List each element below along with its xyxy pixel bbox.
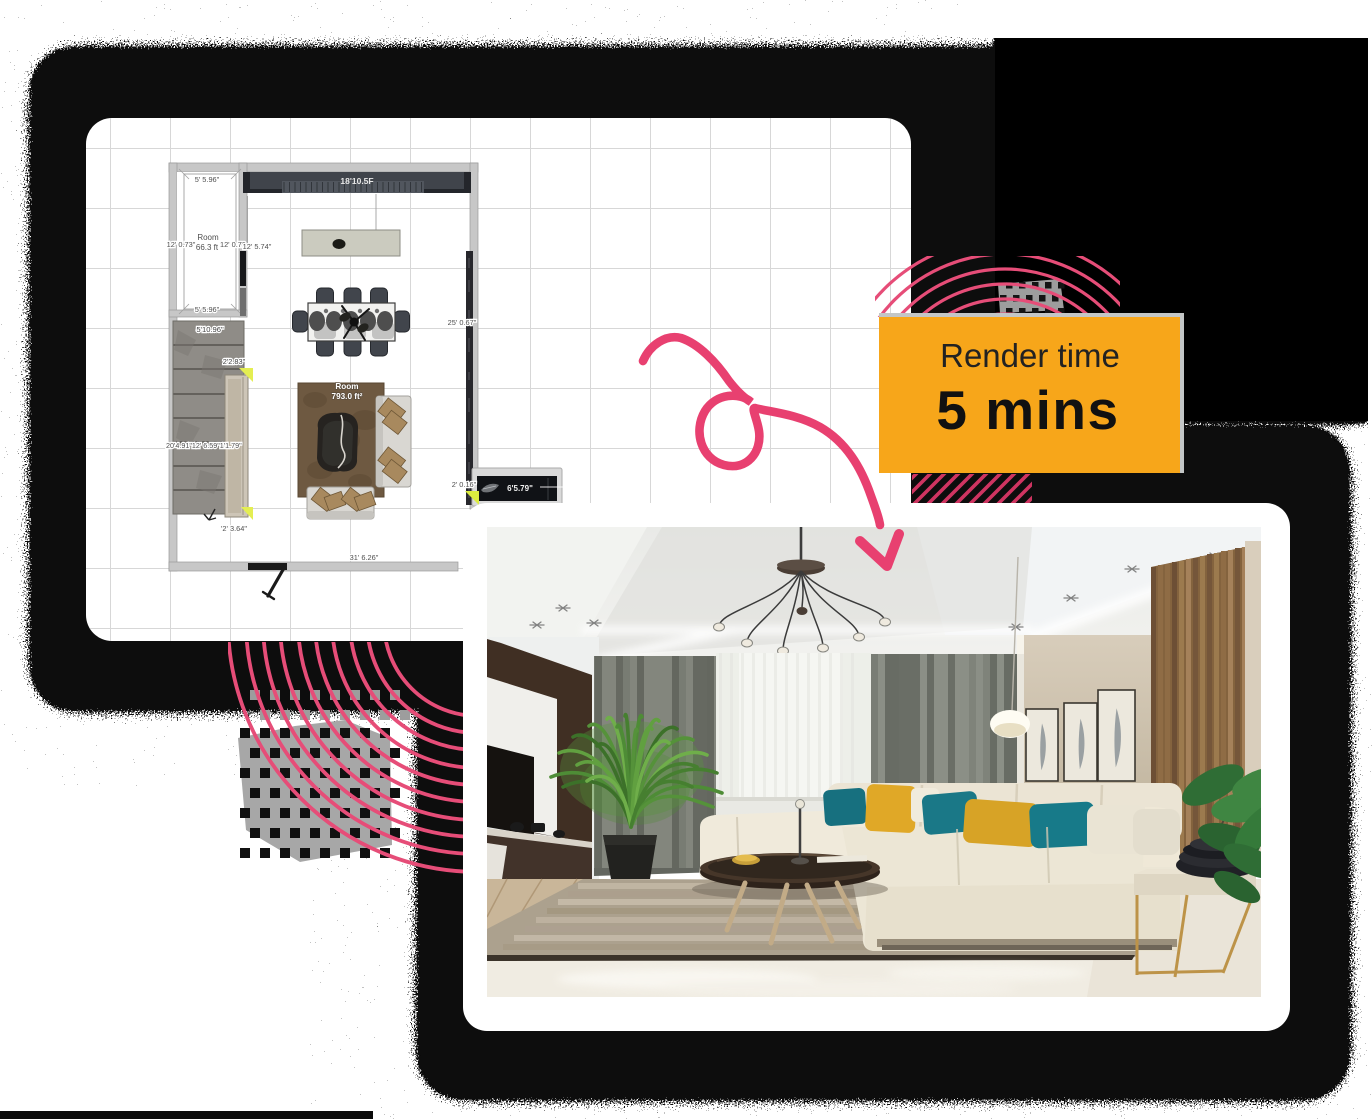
- svg-text:20'4.91"12' 6.59"1'1.79": 20'4.91"12' 6.59"1'1.79": [166, 441, 242, 450]
- svg-text:Room: Room: [335, 382, 358, 391]
- svg-text:66.3 ft: 66.3 ft: [196, 243, 219, 252]
- svg-text:Render time: Render time: [940, 337, 1120, 374]
- svg-text:6'5.79": 6'5.79": [507, 484, 533, 493]
- svg-text:18'10.5F: 18'10.5F: [340, 176, 373, 186]
- svg-text:793.0 ft²: 793.0 ft²: [332, 392, 363, 401]
- svg-text:2'2.83": 2'2.83": [223, 357, 246, 366]
- svg-text:'2' 3.64": '2' 3.64": [221, 524, 247, 533]
- svg-text:Room: Room: [197, 233, 219, 242]
- svg-text:5'10.96": 5'10.96": [196, 325, 224, 334]
- svg-text:12' 0.73": 12' 0.73": [167, 240, 196, 249]
- svg-text:5' 5.96": 5' 5.96": [195, 305, 220, 314]
- svg-text:12' 5.74": 12' 5.74": [243, 242, 272, 251]
- svg-text:5' 5.96": 5' 5.96": [195, 175, 220, 184]
- svg-text:25' 0.67": 25' 0.67": [448, 318, 477, 327]
- svg-text:5 mins: 5 mins: [936, 379, 1119, 441]
- svg-text:2' 0.16": 2' 0.16": [452, 480, 477, 489]
- svg-text:31' 6.26": 31' 6.26": [350, 553, 379, 562]
